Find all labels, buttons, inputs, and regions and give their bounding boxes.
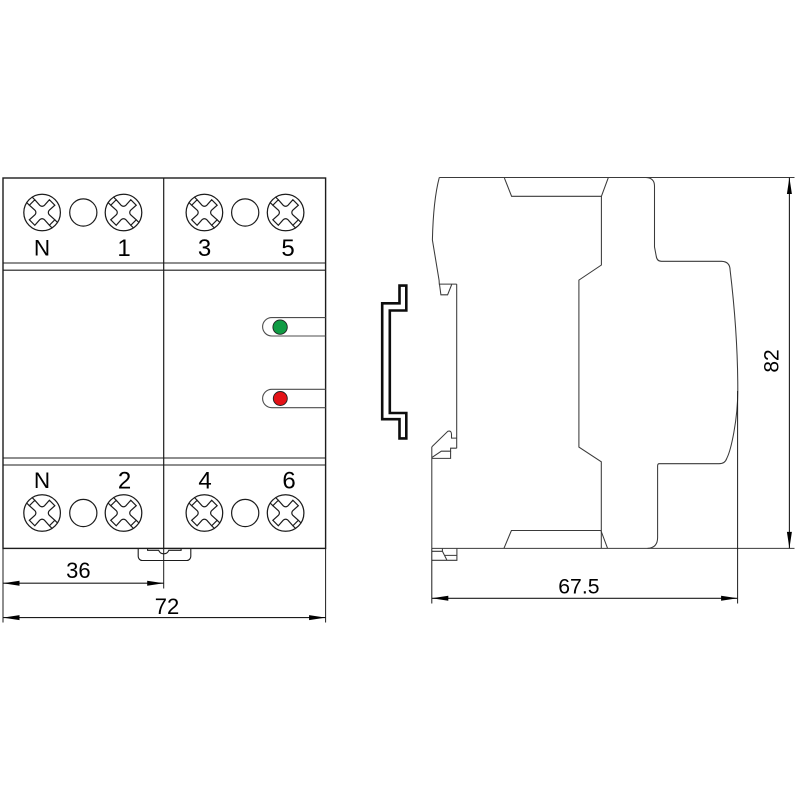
svg-text:6: 6 xyxy=(282,468,295,495)
svg-text:3: 3 xyxy=(198,235,211,262)
svg-text:72: 72 xyxy=(155,594,179,619)
svg-text:4: 4 xyxy=(198,468,211,495)
svg-text:82: 82 xyxy=(760,349,783,372)
svg-text:N: N xyxy=(34,236,50,261)
svg-text:5: 5 xyxy=(281,235,294,262)
svg-text:2: 2 xyxy=(118,468,131,495)
svg-text:1: 1 xyxy=(117,235,130,262)
svg-text:67.5: 67.5 xyxy=(558,575,599,598)
svg-text:N: N xyxy=(34,468,50,493)
svg-text:36: 36 xyxy=(66,558,90,583)
